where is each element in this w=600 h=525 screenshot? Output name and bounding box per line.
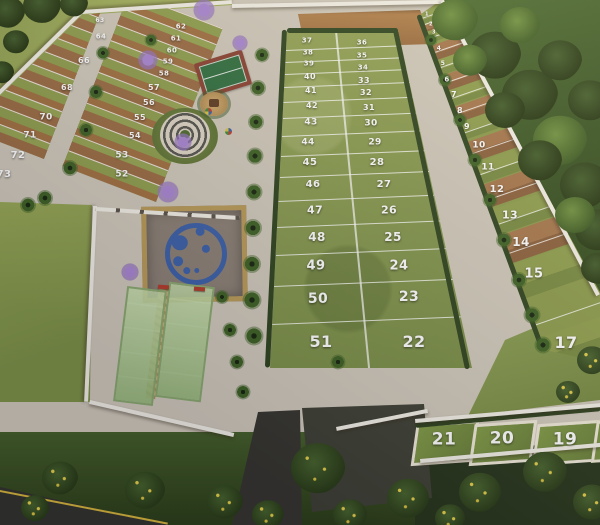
- palm-tree: [524, 307, 541, 324]
- game-table-1: [205, 108, 212, 115]
- plot-label-1: 1: [425, 13, 429, 18]
- plot-label-10: 10: [472, 142, 485, 151]
- plot-label-51: 51: [309, 334, 332, 350]
- logo-dot-3: [202, 245, 210, 253]
- tree-canopy: [453, 45, 487, 76]
- red-bench-2: [194, 287, 205, 292]
- jacaranda-tree: [157, 181, 179, 203]
- tree-canopy: [485, 92, 525, 128]
- palm-tree: [223, 323, 238, 338]
- plot-label-11: 11: [481, 164, 494, 173]
- flowering-bush: [333, 499, 367, 525]
- plot-label-60: 60: [167, 48, 178, 55]
- tree-canopy: [518, 140, 562, 180]
- plot-label-25: 25: [384, 231, 402, 243]
- plot-label-47: 47: [307, 205, 323, 216]
- plot-label-15: 15: [525, 268, 544, 281]
- palm-tree: [20, 197, 36, 213]
- plot-label-13: 13: [502, 210, 518, 221]
- palm-tree: [230, 355, 245, 370]
- plot-label-4: 4: [437, 46, 442, 52]
- plot-label-21: 21: [432, 432, 456, 449]
- palm-tree: [331, 355, 346, 370]
- plot-label-41: 41: [305, 87, 317, 95]
- flowering-bush: [21, 495, 49, 521]
- flowering-bush: [252, 500, 284, 525]
- plot-label-35: 35: [357, 53, 368, 60]
- plot-label-38: 38: [303, 50, 314, 57]
- plot-label-59: 59: [163, 59, 174, 66]
- palm-tree: [96, 46, 110, 60]
- plot-label-23: 23: [399, 290, 419, 304]
- plot-label-14: 14: [512, 236, 530, 248]
- plot-label-27: 27: [377, 180, 392, 190]
- plot-label-53: 53: [115, 152, 128, 161]
- palm-tree: [89, 85, 104, 100]
- palm-tree: [496, 232, 512, 248]
- plot-label-28: 28: [370, 158, 385, 168]
- palm-tree: [215, 290, 229, 304]
- palm-tree: [247, 148, 264, 165]
- plot-label-61: 61: [171, 36, 182, 43]
- play-structure: [209, 99, 219, 107]
- plot-label-20: 20: [490, 431, 514, 448]
- palm-tree: [243, 291, 262, 310]
- plot-label-33: 33: [358, 77, 370, 85]
- palm-tree: [255, 48, 270, 63]
- palm-tree: [244, 219, 262, 237]
- plot-label-70: 70: [39, 114, 52, 123]
- plot-label-66: 66: [78, 57, 90, 65]
- flowering-bush: [125, 472, 165, 509]
- logo-dot-4: [173, 256, 183, 266]
- plot-label-56: 56: [143, 99, 155, 107]
- palm-tree: [246, 184, 263, 201]
- plot-label-55: 55: [134, 114, 146, 122]
- plot-label-45: 45: [303, 158, 318, 168]
- tree-canopy: [500, 7, 540, 43]
- plot-label-40: 40: [304, 73, 316, 81]
- palm-tree: [37, 190, 53, 206]
- plot-label-57: 57: [148, 84, 160, 92]
- plot-label-72: 72: [11, 151, 26, 161]
- logo-dot-2: [196, 227, 205, 236]
- plot-label-12: 12: [490, 185, 505, 195]
- palm-tree: [62, 160, 78, 176]
- plot-label-9: 9: [464, 123, 470, 131]
- plot-label-73: 73: [0, 170, 11, 180]
- plot-label-58: 58: [159, 71, 170, 78]
- plot-label-68: 68: [61, 84, 73, 92]
- plot-label-19: 19: [553, 432, 577, 449]
- flowering-bush: [435, 504, 465, 525]
- plot-label-43: 43: [304, 119, 317, 128]
- flowering-bush: [577, 346, 600, 374]
- palm-tree: [468, 153, 483, 168]
- palm-tree: [250, 80, 266, 96]
- palm-tree: [243, 255, 261, 273]
- red-bench-1: [158, 285, 169, 290]
- plot-label-24: 24: [390, 260, 409, 273]
- plot-label-37: 37: [302, 38, 313, 45]
- tree-canopy: [555, 197, 595, 233]
- palm-tree: [79, 123, 94, 138]
- plot-label-39: 39: [304, 61, 315, 68]
- plot-label-30: 30: [364, 120, 377, 129]
- tree-canopy: [538, 40, 582, 80]
- logo-dot-5: [183, 267, 190, 274]
- plot-label-7: 7: [451, 91, 457, 99]
- plot-label-26: 26: [381, 205, 397, 216]
- plot-label-36: 36: [357, 40, 368, 47]
- plot-label-63: 63: [95, 18, 104, 24]
- plot-label-29: 29: [368, 139, 381, 148]
- plot-label-50: 50: [308, 292, 328, 306]
- plot-label-48: 48: [308, 231, 326, 243]
- plot-label-8: 8: [457, 107, 463, 115]
- plot-label-3: 3: [432, 31, 436, 36]
- jacaranda-tree: [174, 133, 192, 151]
- logo-dot-7: [180, 226, 185, 231]
- plot-label-64: 64: [96, 34, 107, 41]
- plot-label-54: 54: [129, 132, 141, 140]
- plot-label-62: 62: [176, 24, 187, 31]
- plot-label-31: 31: [363, 104, 375, 112]
- flowering-bush: [42, 461, 78, 494]
- center-hedge-north: [287, 28, 398, 33]
- jacaranda-tree: [121, 263, 139, 281]
- jacaranda-tree: [138, 50, 158, 70]
- plot-label-42: 42: [306, 102, 318, 110]
- palm-tree: [145, 34, 158, 47]
- plot-label-22: 22: [402, 334, 425, 350]
- master-plan-render: 6364666870717273626160595857565554535237…: [0, 0, 600, 525]
- jacaranda-tree: [232, 35, 248, 51]
- palm-tree: [535, 337, 552, 354]
- tennis-net-line: [204, 68, 243, 81]
- plot-label-44: 44: [301, 139, 314, 148]
- plot-label-46: 46: [306, 180, 321, 190]
- game-table-2: [225, 128, 232, 135]
- flowering-bush: [556, 381, 580, 403]
- flowering-bush: [387, 479, 429, 518]
- plot-label-2: 2: [429, 23, 433, 28]
- palm-tree: [245, 327, 264, 346]
- plot-label-5: 5: [441, 61, 446, 67]
- plot-label-71: 71: [23, 132, 36, 141]
- flowering-bush: [291, 443, 345, 493]
- plot-label-17: 17: [554, 335, 577, 351]
- palm-tree: [236, 385, 251, 400]
- flowering-bush: [459, 473, 501, 512]
- logo-dot-6: [194, 268, 199, 273]
- palm-tree: [248, 114, 264, 130]
- plot-label-52: 52: [115, 171, 128, 180]
- flowering-bush: [207, 485, 243, 518]
- plot-label-6: 6: [444, 77, 449, 84]
- jacaranda-tree: [193, 0, 215, 21]
- plot-label-49: 49: [307, 260, 326, 273]
- plot-label-34: 34: [358, 65, 369, 72]
- plot-label-32: 32: [360, 89, 372, 97]
